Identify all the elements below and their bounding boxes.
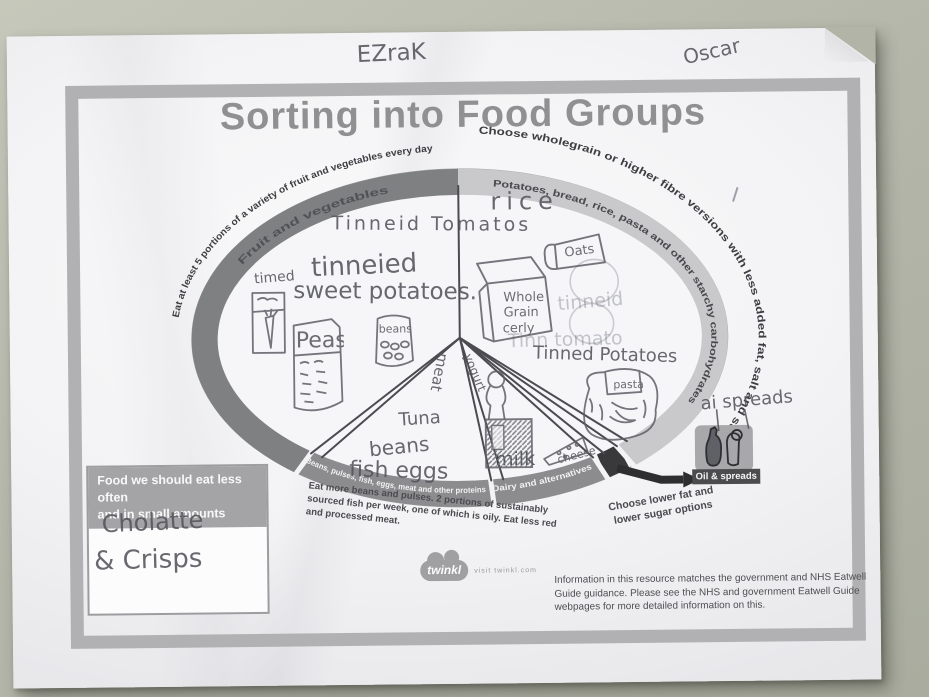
oil-bottles-drawing: [695, 425, 753, 472]
footer-info-text: Information in this resource matches the…: [554, 571, 868, 615]
hw-cereal-line2: Grain: [503, 305, 538, 320]
twinkl-logo: twinkl: [420, 560, 468, 582]
eat-less-often-header-line1: Food we should eat less often: [97, 471, 257, 507]
hw-crisps: & Crisps: [94, 544, 203, 577]
hw-peas-label: Peas: [296, 328, 345, 354]
oil-spreads-box: [695, 425, 753, 472]
hw-beans-tin-label: beans: [379, 322, 413, 335]
drawing-cheese-wedge: [541, 434, 591, 467]
hw-tinned-can-label: timed: [254, 268, 296, 287]
drawing-faint-scribbles: [559, 253, 630, 349]
drawing-yogurt-pot: [474, 369, 515, 421]
drawing-beans-tin: beans: [370, 312, 417, 370]
drawing-tinned-can: [249, 290, 288, 356]
hw-cereal-line1: Whole: [503, 290, 544, 305]
hw-cereal-line3: cerly: [503, 321, 535, 336]
eat-less-often-box: Food we should eat less often and in sma…: [86, 464, 270, 616]
hw-pasta-label: pasta: [613, 378, 644, 391]
hw-tinned-tomatoes: Tinneid Tomatos: [332, 212, 532, 235]
hw-chocolate: Cholatte: [101, 506, 204, 539]
oil-spreads-label: Oil & spreads: [692, 469, 760, 485]
drawing-peas-bag: Peas: [288, 315, 345, 416]
student-name-left: EZraK: [356, 39, 426, 68]
student-name-right: Oscar: [681, 33, 742, 69]
oil-label-connector-strokes: [703, 409, 759, 432]
hw-tuna: Tuna: [398, 407, 441, 431]
oils-arrow: [617, 467, 700, 488]
photo-of-worksheet: EZraK Oscar Sorting into Food Groups: [0, 0, 929, 697]
hw-rice: rice: [490, 187, 559, 216]
drawing-pasta-bag: pasta: [575, 364, 662, 445]
hw-fish-eggs: fish eggs: [349, 457, 449, 484]
twinkl-visit-text: visit twinkl.com: [474, 567, 537, 575]
hw-tinned-sweet-line2: sweet potatoes.: [293, 278, 477, 305]
drawing-milk-carton: [482, 415, 537, 472]
worksheet-paper: EZraK Oscar Sorting into Food Groups: [7, 27, 882, 688]
twinkl-logo-text: twinkl: [420, 560, 468, 582]
